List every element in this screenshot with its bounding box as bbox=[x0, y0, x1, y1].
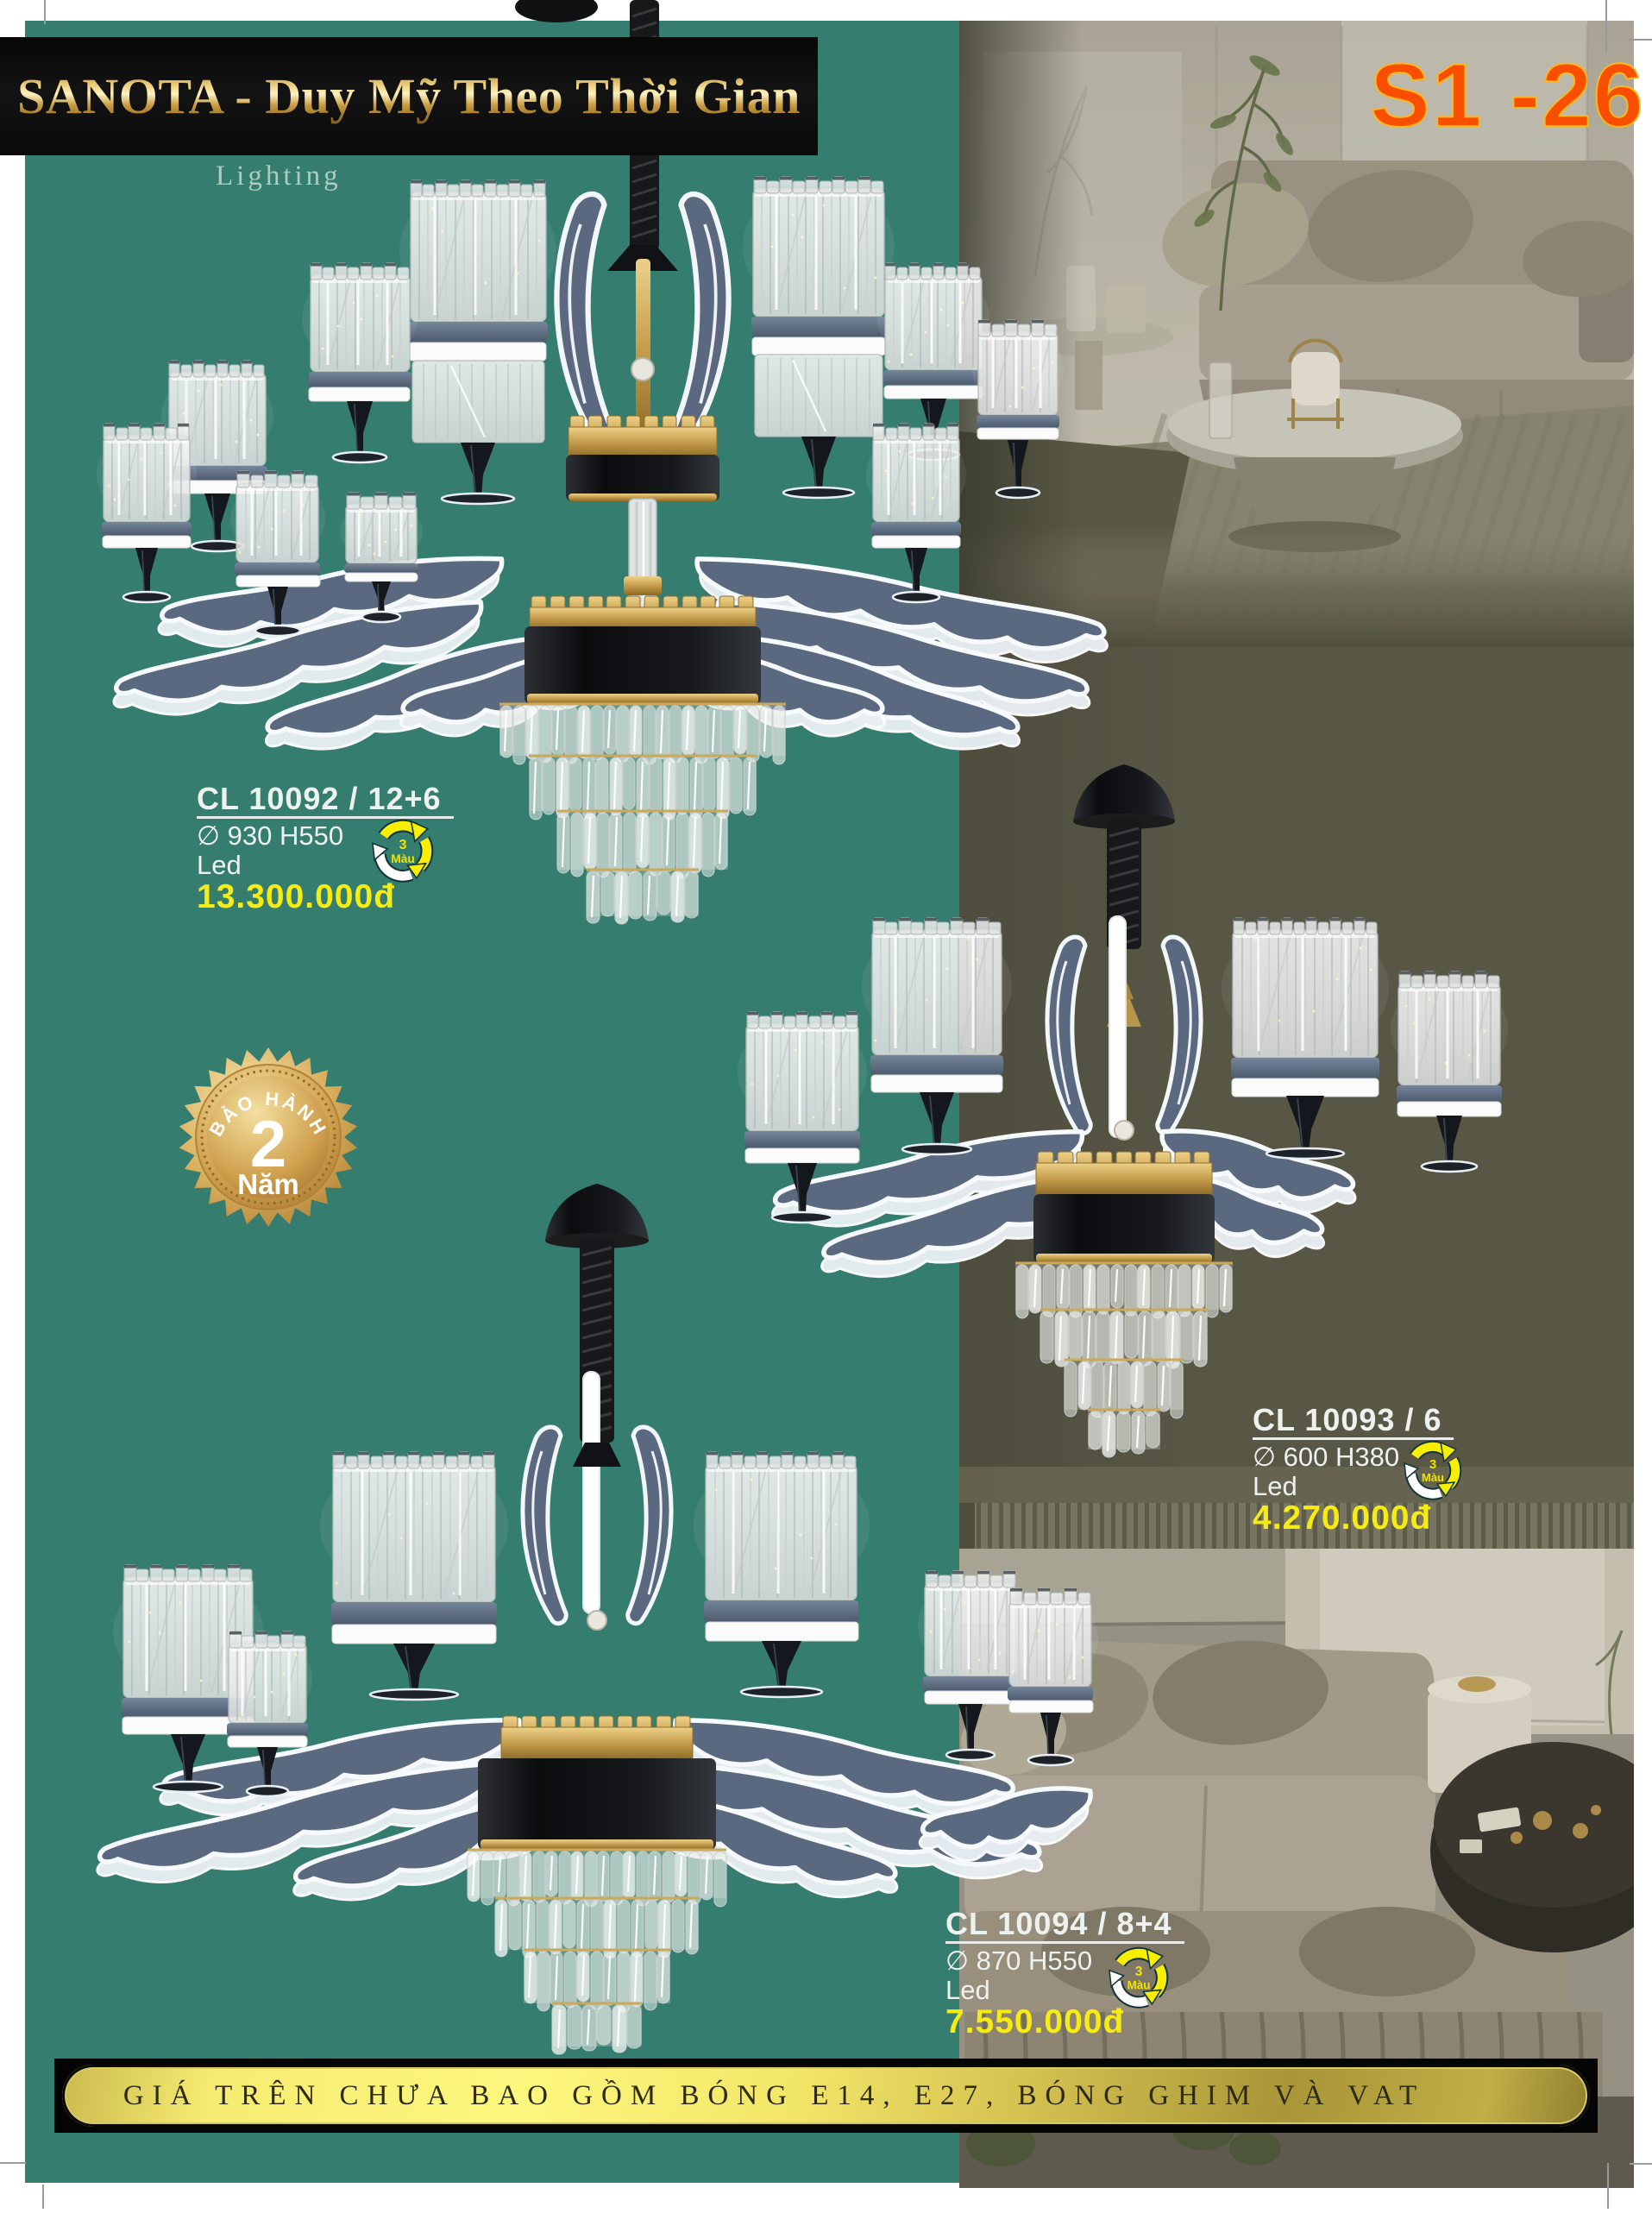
svg-text:Năm: Năm bbox=[237, 1168, 299, 1200]
